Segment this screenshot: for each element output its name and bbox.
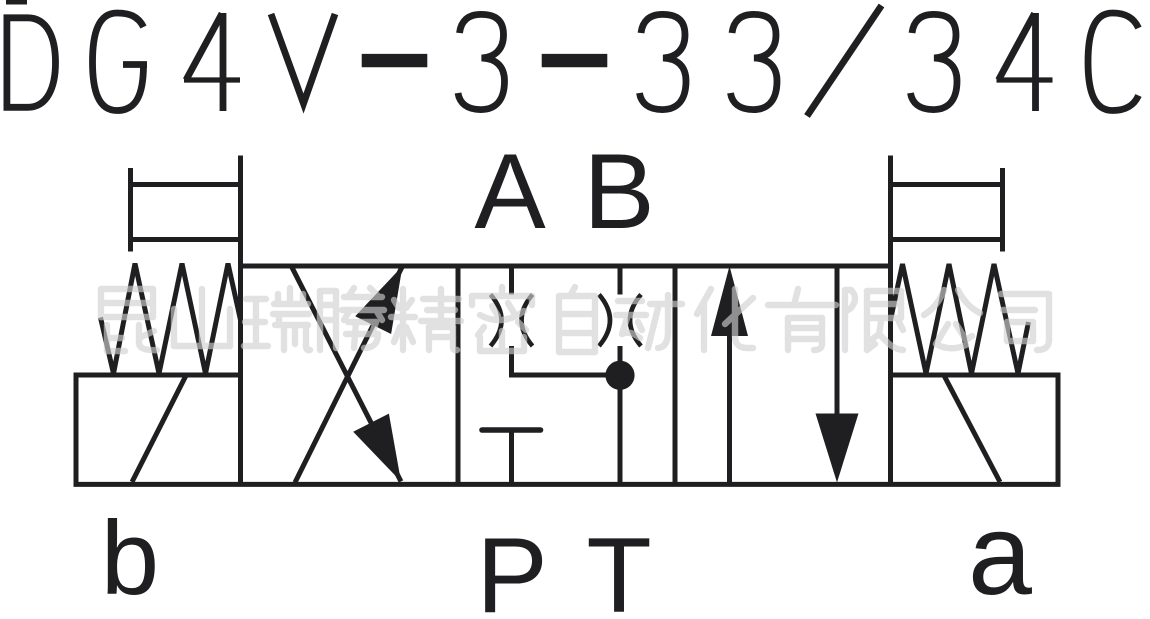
svg-text:A: A bbox=[474, 131, 546, 251]
svg-text:b: b bbox=[101, 500, 159, 617]
svg-text:a: a bbox=[968, 491, 1032, 619]
svg-text:T: T bbox=[586, 515, 651, 619]
svg-text:B: B bbox=[583, 131, 654, 251]
svg-text:P: P bbox=[476, 515, 547, 619]
